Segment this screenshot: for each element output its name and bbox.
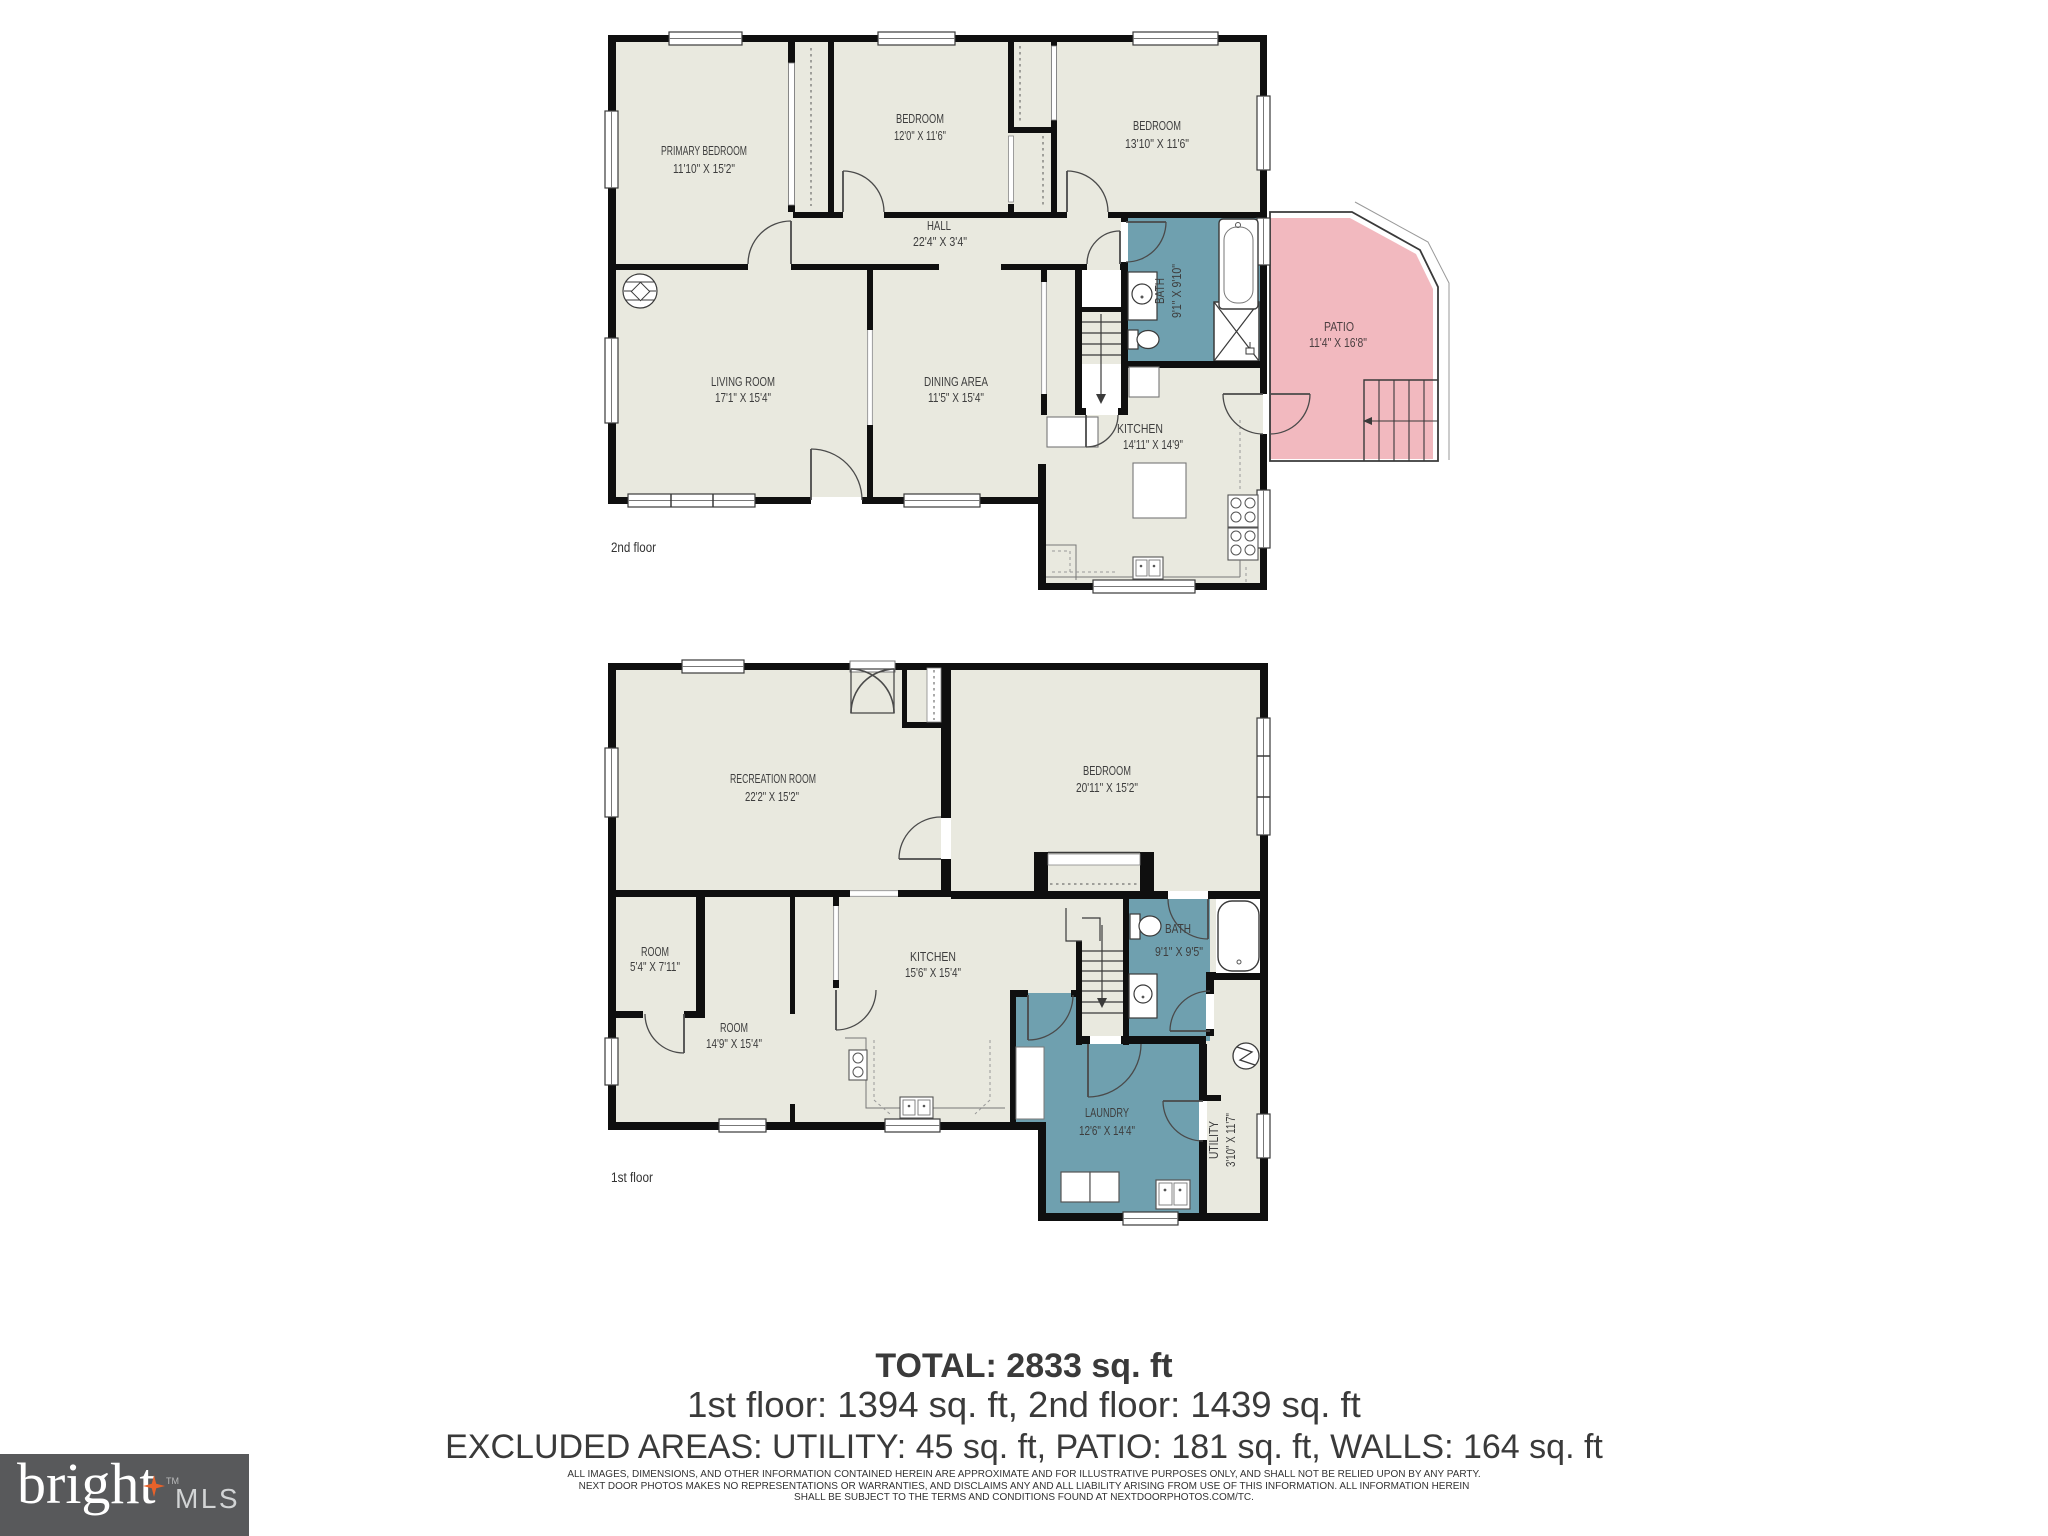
svg-text:PRIMARY BEDROOM: PRIMARY BEDROOM bbox=[661, 144, 747, 158]
svg-text:ROOM: ROOM bbox=[641, 945, 669, 959]
svg-text:HALL: HALL bbox=[927, 219, 951, 233]
svg-text:12'0" X 11'6": 12'0" X 11'6" bbox=[894, 129, 946, 143]
svg-text:17'1" X 15'4": 17'1" X 15'4" bbox=[715, 391, 771, 405]
svg-text:14'11" X 14'9": 14'11" X 14'9" bbox=[1123, 438, 1183, 452]
svg-text:KITCHEN: KITCHEN bbox=[910, 950, 956, 964]
svg-text:BATH: BATH bbox=[1153, 278, 1167, 304]
svg-text:22'4" X 3'4": 22'4" X 3'4" bbox=[913, 235, 967, 249]
svg-text:9'1" X 9'5": 9'1" X 9'5" bbox=[1155, 945, 1203, 959]
svg-text:DINING AREA: DINING AREA bbox=[924, 375, 989, 389]
svg-text:20'11" X 15'2": 20'11" X 15'2" bbox=[1076, 781, 1138, 795]
svg-text:BEDROOM: BEDROOM bbox=[1083, 764, 1131, 778]
svg-text:11'4" X 16'8": 11'4" X 16'8" bbox=[1309, 336, 1367, 350]
svg-text:LIVING ROOM: LIVING ROOM bbox=[711, 375, 775, 389]
svg-text:15'6" X 15'4": 15'6" X 15'4" bbox=[905, 966, 961, 980]
svg-text:BEDROOM: BEDROOM bbox=[1133, 119, 1181, 133]
svg-text:5'4" X 7'11": 5'4" X 7'11" bbox=[630, 960, 680, 974]
svg-text:UTILITY: UTILITY bbox=[1207, 1120, 1221, 1159]
svg-text:14'9" X 15'4": 14'9" X 15'4" bbox=[706, 1037, 762, 1051]
svg-text:BATH: BATH bbox=[1165, 922, 1191, 936]
svg-text:3'10" X 11'7": 3'10" X 11'7" bbox=[1224, 1113, 1238, 1167]
svg-text:2nd floor: 2nd floor bbox=[611, 540, 656, 555]
svg-text:ROOM: ROOM bbox=[720, 1021, 748, 1035]
svg-text:1st floor: 1st floor bbox=[611, 1170, 653, 1185]
svg-text:13'10" X 11'6": 13'10" X 11'6" bbox=[1125, 137, 1189, 151]
svg-text:11'10" X 15'2": 11'10" X 15'2" bbox=[673, 162, 735, 176]
svg-text:9'1" X 9'10": 9'1" X 9'10" bbox=[1170, 264, 1184, 318]
svg-text:RECREATION ROOM: RECREATION ROOM bbox=[730, 772, 816, 786]
svg-text:11'5" X 15'4": 11'5" X 15'4" bbox=[928, 391, 984, 405]
svg-text:PATIO: PATIO bbox=[1324, 320, 1354, 334]
svg-text:12'6" X 14'4": 12'6" X 14'4" bbox=[1079, 1124, 1135, 1138]
svg-text:22'2" X 15'2": 22'2" X 15'2" bbox=[745, 790, 799, 804]
svg-text:LAUNDRY: LAUNDRY bbox=[1085, 1106, 1129, 1120]
svg-text:KITCHEN: KITCHEN bbox=[1117, 422, 1163, 436]
svg-text:BEDROOM: BEDROOM bbox=[896, 112, 944, 126]
